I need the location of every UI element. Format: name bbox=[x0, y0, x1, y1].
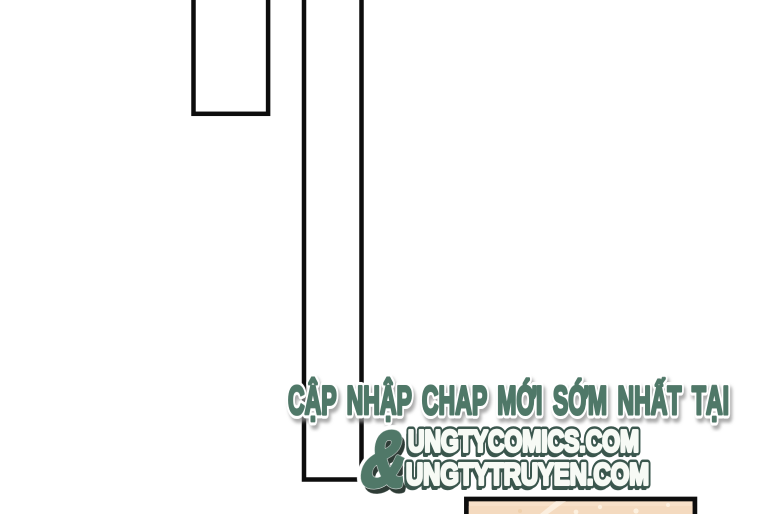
svg-text:UNGTYTRUYEN.COM: UNGTYTRUYEN.COM bbox=[406, 456, 649, 491]
svg-text:CẬP NHẬP CHAP MỚI SỚM NHẤT TẠI: CẬP NHẬP CHAP MỚI SỚM NHẤT TẠI bbox=[288, 377, 729, 423]
svg-text:UNGTYCOMICS.COM: UNGTYCOMICS.COM bbox=[408, 424, 639, 459]
